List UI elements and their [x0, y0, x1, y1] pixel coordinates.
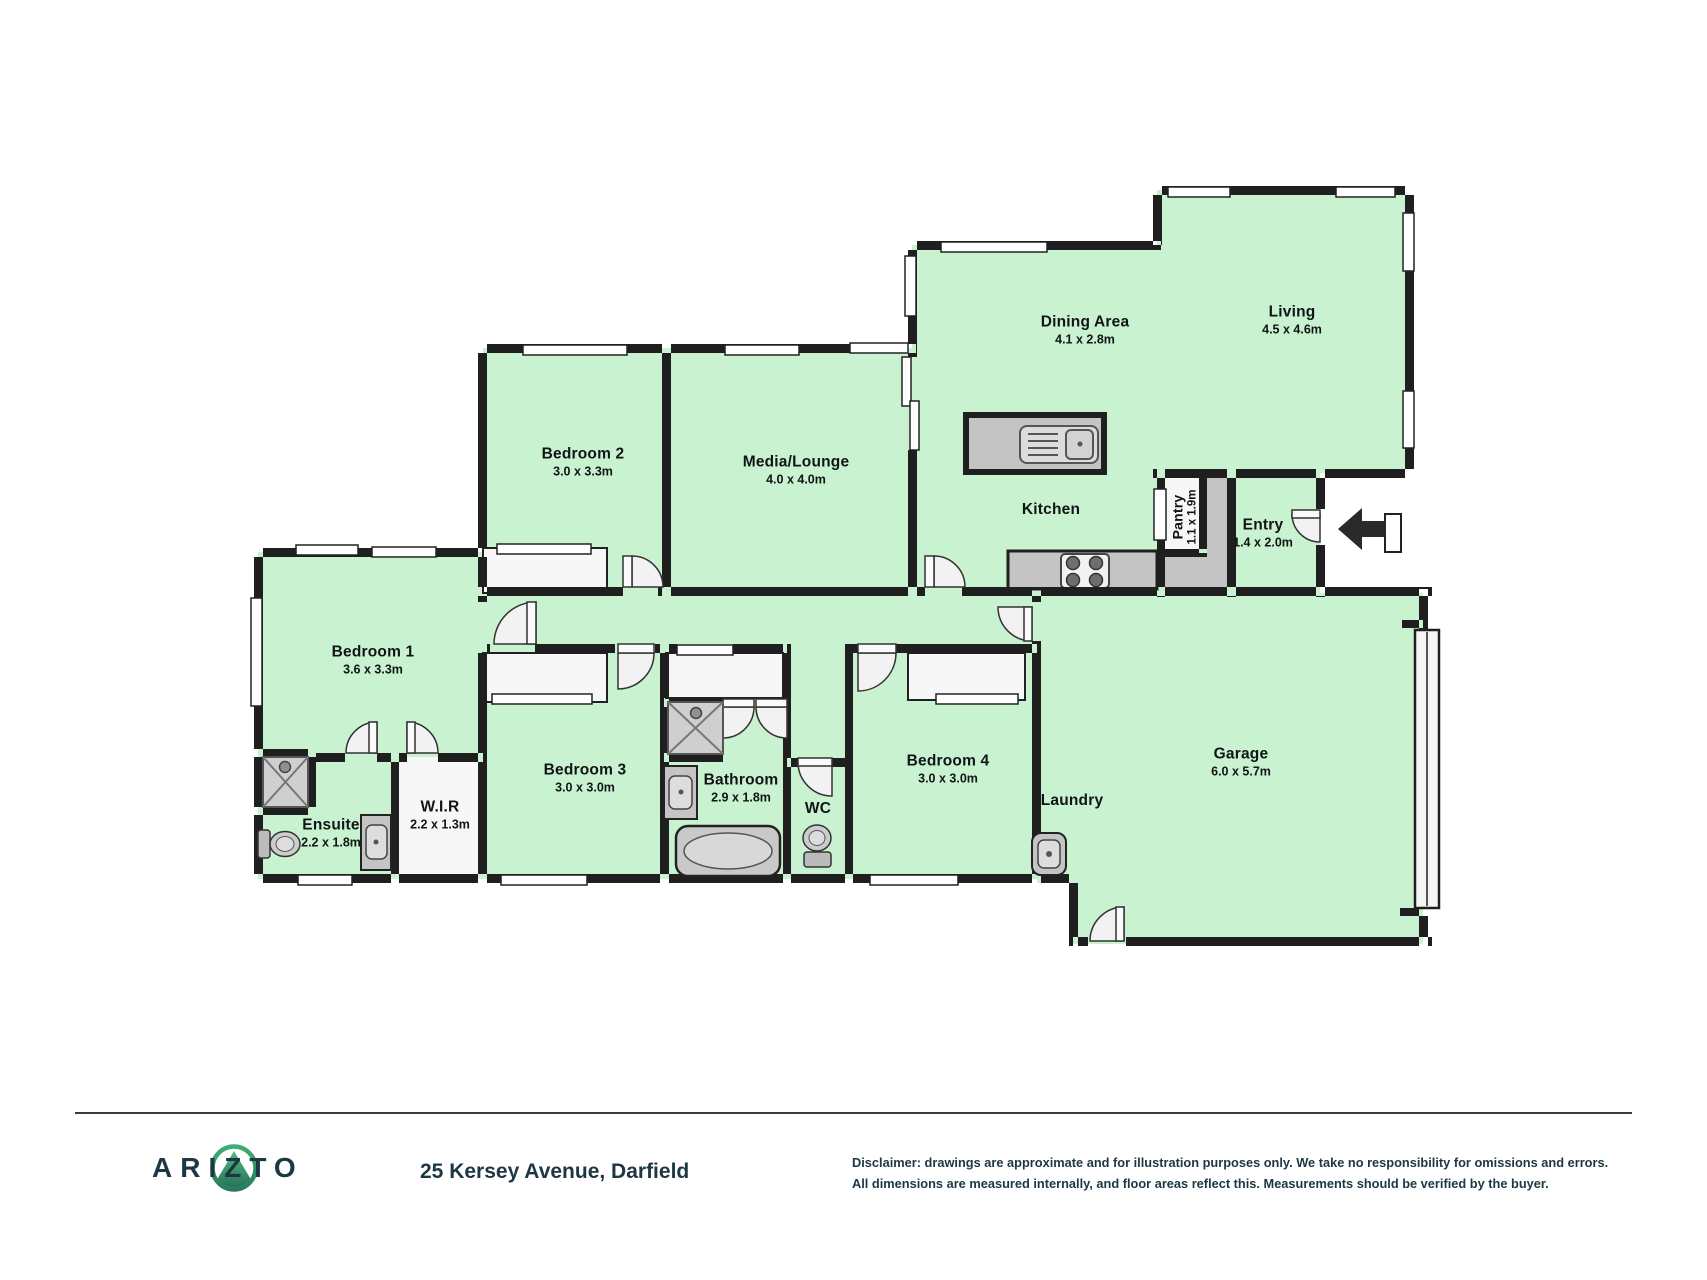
porch-post	[1385, 514, 1401, 552]
ensuite-toilet	[258, 830, 300, 858]
floorplan: Bedroom 23.0 x 3.3mMedia/Lounge4.0 x 4.0…	[0, 0, 1707, 1280]
closet-opening	[677, 645, 733, 655]
kitchen-island	[966, 415, 1104, 472]
bedroom4-robe	[908, 653, 1025, 700]
disclaimer-line-2: All dimensions are measured internally, …	[852, 1173, 1608, 1194]
robe-opening	[492, 694, 592, 704]
footer-divider	[75, 1112, 1632, 1114]
bathroom-closet	[666, 653, 783, 698]
floorplan-page: { "floorplan": { "rooms": [ {"id":"bedro…	[0, 0, 1707, 1280]
media-sliding-door	[902, 357, 911, 406]
media-sliding-door	[910, 401, 919, 450]
kitchen-bench	[1008, 551, 1157, 589]
ensuite-vanity	[361, 815, 391, 870]
disclaimer: Disclaimer: drawings are approximate and…	[852, 1152, 1608, 1194]
wir-floor	[399, 757, 478, 874]
entry-direction-arrow	[1338, 508, 1386, 550]
robe-opening	[497, 544, 591, 554]
wc-toilet	[803, 825, 831, 867]
property-address: 25 Kersey Avenue, Darfield	[420, 1160, 689, 1184]
robe-opening	[936, 694, 1018, 704]
floorplan-drawing	[0, 0, 1707, 1280]
bathtub	[676, 826, 780, 876]
ensuite-shower	[263, 757, 308, 807]
disclaimer-line-1: Disclaimer: drawings are approximate and…	[852, 1152, 1608, 1173]
pantry-floor	[1162, 478, 1199, 549]
brand-name: ARIZTO	[152, 1152, 304, 1184]
laundry-tub	[1032, 833, 1066, 875]
garage-door	[1415, 630, 1439, 908]
bathroom-shower	[668, 702, 723, 754]
bathroom-vanity	[664, 766, 697, 819]
pantry-opening	[1154, 489, 1166, 540]
